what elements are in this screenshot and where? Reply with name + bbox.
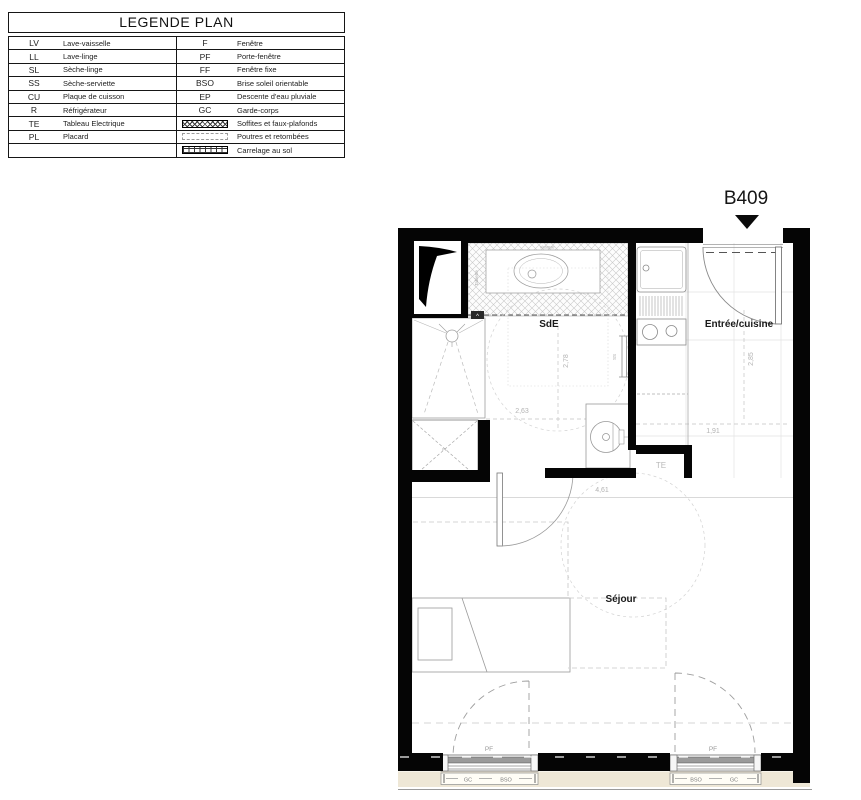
legend-label: Réfrigérateur (59, 106, 176, 115)
legend-abbr: TE (9, 119, 59, 129)
legend-label: Brise soleil orientable (233, 79, 344, 88)
legend-abbr: LV (9, 38, 59, 48)
legend-row: PL Placard Poutres et retombées (9, 131, 344, 144)
guardrail-strip-right (670, 773, 761, 785)
closet: PL (412, 420, 478, 478)
legend-swatch-cell (176, 131, 233, 143)
bso-label-right: BSO (690, 778, 702, 784)
gc-label-left: GC (464, 778, 472, 784)
pf-label-right: PF (709, 746, 717, 753)
legend: LEGENDE PLAN LV Lave-vaisselle F Fenêtre… (8, 12, 345, 158)
bso-label-left: BSO (500, 778, 512, 784)
dim-kitchen-width: 1,91 (706, 428, 720, 435)
legend-abbr: FF (176, 64, 233, 76)
legend-label: Poutres et retombées (233, 132, 344, 141)
legend-abbr: PL (9, 132, 59, 142)
legend-row: R Réfrigérateur GC Garde-corps (9, 104, 344, 117)
legend-row: SL Sèche-linge FF Fenêtre fixe (9, 64, 344, 77)
kitchen-sink (637, 247, 686, 292)
vasque-label: Vasque (540, 245, 555, 250)
room-label-sejour: Séjour (605, 594, 636, 605)
floor-plan-page: LEGENDE PLAN LV Lave-vaisselle F Fenêtre… (0, 0, 861, 800)
legend-abbr: PF (176, 50, 233, 62)
vent-marker-glyph: ^ (476, 314, 479, 320)
dim-sde-height: 2,78 (563, 354, 570, 368)
legend-table: LV Lave-vaisselle F Fenêtre LL Lave-ling… (8, 36, 345, 158)
legend-abbr: GC (176, 104, 233, 116)
towel-radiator (619, 336, 630, 377)
grid-swatch (182, 146, 228, 154)
gc-label-right: GC (730, 778, 738, 784)
legend-label: Porte-fenêtre (233, 52, 344, 61)
shower (412, 318, 485, 418)
legend-abbr: F (176, 37, 233, 49)
legend-row: SS Sèche-serviette BSO Brise soleil orie… (9, 77, 344, 90)
tablette-label: Tablette (474, 270, 479, 286)
legend-label: Fenêtre fixe (233, 65, 344, 74)
room-label-entree: Entrée/cuisine (705, 319, 774, 330)
legend-label: Tableau Electrique (59, 119, 176, 128)
entrance-door (703, 245, 783, 325)
legend-swatch-cell (176, 144, 233, 156)
legend-row: TE Tableau Electrique Soffites et faux-p… (9, 117, 344, 130)
legend-label: Soffites et faux-plafonds (233, 119, 344, 128)
legend-abbr: BSO (176, 77, 233, 89)
legend-swatch-cell (176, 117, 233, 129)
legend-label: Placard (59, 132, 176, 141)
legend-title: LEGENDE PLAN (8, 12, 345, 33)
cooktop (637, 319, 686, 345)
legend-label: Garde-corps (233, 106, 344, 115)
pf-label-left: PF (485, 746, 493, 753)
legend-label: Plaque de cuisson (59, 92, 176, 101)
legend-label: Lave-vaisselle (59, 39, 176, 48)
legend-row: LL Lave-linge PF Porte-fenêtre (9, 50, 344, 63)
toilet (586, 404, 630, 468)
vent-marker: ^ (471, 311, 484, 320)
washbasin (486, 250, 600, 293)
legend-label: Sèche-serviette (59, 79, 176, 88)
hatch-swatch (182, 120, 228, 128)
towel-radiator-label: SS (612, 354, 617, 360)
legend-abbr: R (9, 105, 59, 115)
pf-door-swings (453, 673, 755, 757)
drainer-lines (640, 296, 682, 316)
technical-shaft (414, 241, 461, 314)
dim-sejour-width: 4,61 (595, 487, 609, 494)
guardrail-strip-left (441, 773, 538, 785)
legend-row: Carrelage au sol (9, 144, 344, 156)
legend-row: CU Plaque de cuisson EP Descente d'eau p… (9, 91, 344, 104)
legend-abbr: CU (9, 92, 59, 102)
legend-abbr: SL (9, 65, 59, 75)
legend-label: Fenêtre (233, 39, 344, 48)
room-label-sde: SdE (539, 319, 559, 330)
dim-sde-width: 2,63 (515, 408, 529, 415)
legend-abbr: EP (176, 91, 233, 103)
window-left (441, 755, 538, 771)
legend-abbr: SS (9, 78, 59, 88)
floor-plan: B409 Vasque Tablette (390, 180, 820, 798)
legend-label: Descente d'eau pluviale (233, 92, 344, 101)
unit-label: B409 (724, 188, 768, 209)
legend-label: Lave-linge (59, 52, 176, 61)
bed (412, 598, 570, 672)
closet-label: PL (442, 447, 448, 452)
electrical-panel-label: TE (656, 461, 666, 470)
dim-kitchen-height: 2,85 (748, 352, 755, 366)
legend-label: Carrelage au sol (233, 146, 344, 155)
entrance-pointer-icon (735, 215, 759, 229)
legend-row: LV Lave-vaisselle F Fenêtre (9, 37, 344, 50)
legend-abbr: LL (9, 52, 59, 62)
dashed-swatch (182, 133, 228, 140)
legend-label: Sèche-linge (59, 65, 176, 74)
